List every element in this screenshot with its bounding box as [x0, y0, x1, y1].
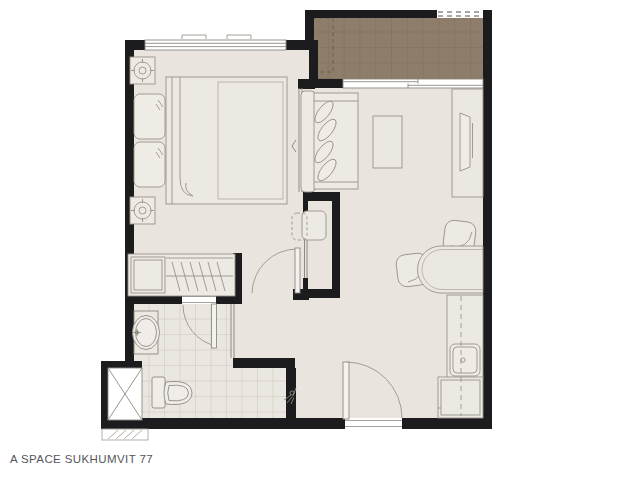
kitchen-sink	[450, 344, 480, 376]
plan-title: A SPACE SUKHUMVIT 77	[10, 453, 153, 465]
balcony-zone	[312, 10, 484, 79]
pillow-bottom	[134, 142, 165, 187]
dining-table	[418, 246, 484, 293]
window-opening-ticks	[182, 35, 251, 39]
sofa	[301, 91, 358, 192]
bedroom-window	[145, 35, 286, 50]
bathroom-door-leaf	[212, 304, 217, 348]
coffee-table	[373, 116, 402, 168]
basin	[133, 311, 160, 354]
nightstand-lamp-top	[130, 57, 155, 84]
tv	[460, 113, 470, 171]
balcony-louver-dashes	[437, 10, 483, 18]
desk	[302, 211, 326, 240]
balcony-sliding-door	[343, 79, 483, 88]
bed	[166, 77, 287, 204]
tv-console	[452, 89, 483, 197]
louver-vent	[102, 429, 148, 440]
bedroom-door-leaf	[295, 248, 300, 293]
ac-shaft	[108, 368, 142, 420]
pillow-top	[134, 94, 165, 139]
floor-plan-page: A SPACE SUKHUMVIT 77	[0, 0, 640, 480]
refrigerator	[438, 377, 483, 418]
wardrobe	[128, 254, 235, 296]
floor-plan-drawing	[0, 0, 640, 480]
entrance-door-leaf	[343, 362, 349, 419]
nightstand-lamp-bottom	[130, 197, 155, 224]
